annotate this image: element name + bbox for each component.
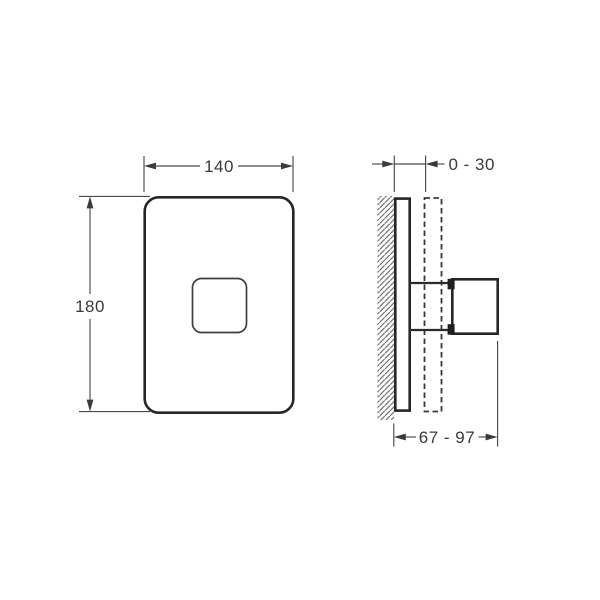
arrow-left-icon <box>394 434 406 441</box>
plate-side-profile <box>395 199 409 411</box>
arrow-left-icon <box>426 161 438 168</box>
arrow-down-icon <box>87 400 94 412</box>
wall-hatch <box>378 196 395 420</box>
projection-dimension: 0 - 30 <box>372 155 495 192</box>
faceplate-center-button <box>193 279 247 333</box>
knob-junction-top <box>448 279 455 290</box>
plate-extended-ghost <box>425 198 442 412</box>
arrow-up-icon <box>87 196 94 208</box>
arrow-right-icon <box>281 163 293 170</box>
technical-drawing-svg: 140 180 <box>0 0 600 600</box>
side-view: 0 - 30 67 - 97 <box>372 155 498 447</box>
projection-dimension-label: 0 - 30 <box>449 155 495 174</box>
width-dimension-label: 140 <box>204 157 234 176</box>
drawing-canvas: 140 180 <box>0 0 600 600</box>
front-view: 140 180 <box>75 156 293 413</box>
handle-knob <box>452 279 497 333</box>
arrow-right-icon <box>486 434 498 441</box>
height-dimension: 180 <box>75 196 150 411</box>
arrow-right-icon <box>382 161 394 168</box>
knob-junction-bottom <box>448 324 455 335</box>
depth-dimension-label: 67 - 97 <box>419 428 475 447</box>
width-dimension: 140 <box>144 156 293 192</box>
height-dimension-label: 180 <box>75 297 105 316</box>
